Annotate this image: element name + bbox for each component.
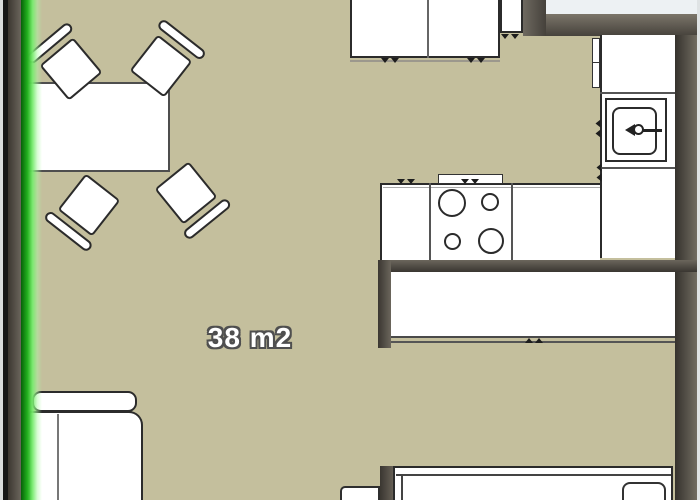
floor-plan: 38 m2 (0, 0, 700, 500)
bed-frame-line (401, 474, 403, 500)
door-handle-mark (381, 58, 399, 63)
radiator-panel[interactable] (592, 62, 600, 88)
burner-icon (444, 233, 461, 250)
burner-icon (478, 228, 504, 254)
burner-icon (438, 189, 466, 217)
area-label: 38 m2 (208, 322, 292, 354)
bed-frame-line (396, 474, 671, 476)
top-cabinet-run[interactable] (350, 0, 500, 58)
door-handle-mark (467, 58, 485, 63)
bed-wall-stub (380, 466, 393, 500)
door-handle-mark (525, 338, 543, 343)
cabinet-divider (427, 0, 429, 58)
counter-divider (511, 183, 513, 260)
counter-divider (429, 183, 431, 260)
radiator-panel[interactable] (592, 38, 600, 64)
top-wall-vertical (523, 0, 546, 36)
door-handle-mark (501, 34, 519, 39)
door-handle-mark (597, 164, 602, 182)
counter-edge-line (383, 187, 600, 188)
alcove-wall-stub (378, 260, 391, 348)
counter-divider (600, 167, 675, 169)
sofa[interactable] (28, 411, 143, 500)
side-furniture[interactable] (340, 486, 380, 500)
exterior-area (546, 0, 697, 15)
sofa-armrest (32, 391, 137, 412)
kitchen-alcove-wall (378, 260, 697, 272)
door-handle-mark (397, 179, 415, 184)
pillow (622, 482, 666, 500)
faucet-knob-icon (633, 124, 644, 135)
top-wall-horizontal (546, 14, 697, 36)
tall-cabinet[interactable] (500, 0, 523, 33)
sofa-cushion-line (57, 414, 59, 500)
burner-icon (481, 193, 499, 211)
counter-divider (600, 92, 675, 94)
door-handle-mark (596, 120, 601, 138)
left-wall (8, 0, 22, 500)
wardrobe[interactable] (391, 272, 675, 338)
door-handle-mark (461, 179, 479, 184)
selected-wall-highlight[interactable] (21, 0, 42, 500)
